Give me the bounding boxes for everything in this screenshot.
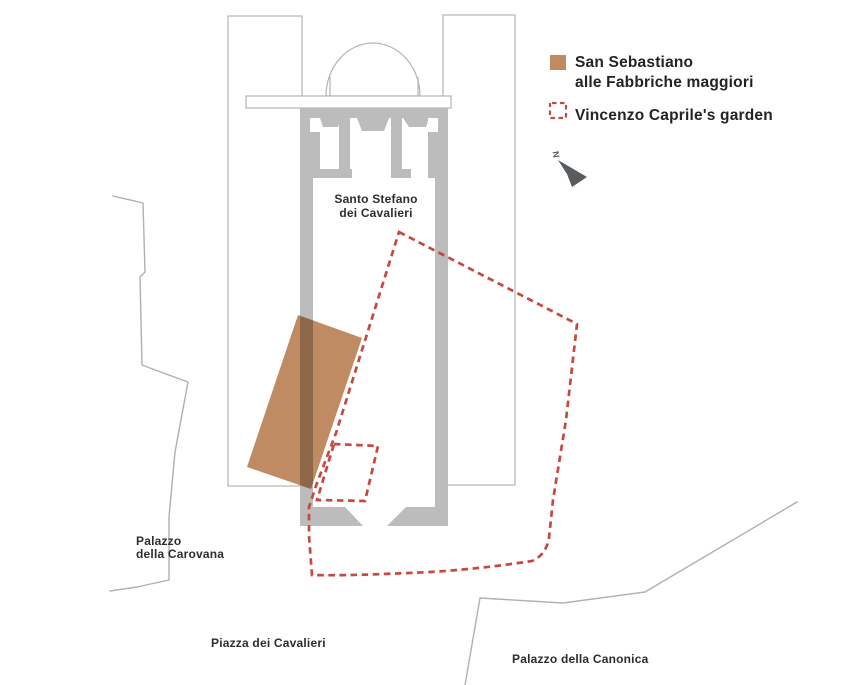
legend-san-sebastiano-line1: San Sebastiano [575, 54, 693, 71]
north-arrow-icon: N [551, 150, 587, 187]
label-carovana-line2: della Carovana [136, 547, 224, 561]
legend-swatch-garden [550, 103, 566, 118]
legend: San Sebastiano alle Fabbriche maggiori V… [550, 54, 773, 124]
label-canonica: Palazzo della Canonica [512, 652, 649, 666]
church-transept-bar [246, 96, 451, 108]
carovana-boundary-line [110, 196, 188, 591]
label-carovana-line1: Palazzo [136, 534, 181, 548]
church-dome-apse [326, 43, 420, 96]
north-arrow-pointer [558, 160, 587, 187]
legend-garden-label: Vincenzo Caprile's garden [575, 107, 773, 124]
site-plan-figure: Santo Stefano dei Cavalieri Palazzo dell… [0, 0, 854, 685]
building-outline-right [443, 15, 515, 485]
label-church-line1: Santo Stefano [334, 192, 417, 206]
legend-swatch-san-sebastiano [550, 55, 566, 70]
north-arrow-letter: N [551, 150, 562, 158]
label-piazza: Piazza dei Cavalieri [211, 636, 326, 650]
legend-san-sebastiano-line2: alle Fabbriche maggiori [575, 74, 754, 91]
garden-parcel-small [317, 444, 378, 501]
label-church-line2: dei Cavalieri [339, 206, 412, 220]
site-plan-canvas: Santo Stefano dei Cavalieri Palazzo dell… [0, 0, 854, 685]
